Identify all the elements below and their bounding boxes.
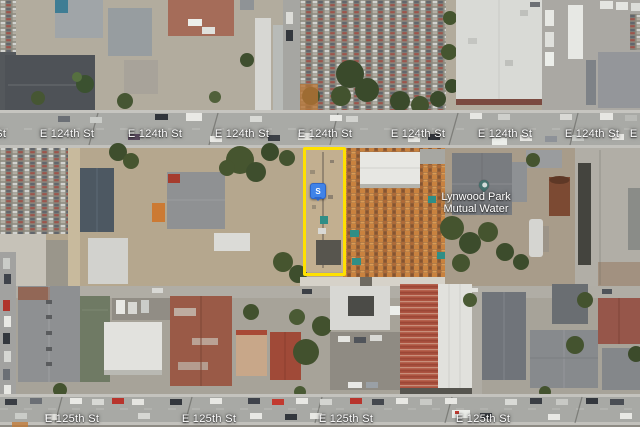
poi-pin-icon[interactable]: [477, 178, 491, 192]
listing-marker[interactable]: S: [310, 183, 326, 199]
street-label: E 124th St: [298, 128, 352, 140]
street-label: E 125th St: [456, 413, 510, 425]
street-label: E 124th St: [565, 128, 619, 140]
listing-marker-pointer: [314, 197, 322, 205]
street-label: E 124th St: [630, 128, 640, 140]
street-label: E 124th St: [478, 128, 532, 140]
street-label: E 124th St: [0, 128, 6, 140]
street-label: E 125th St: [45, 413, 99, 425]
street-label: E 125th St: [182, 413, 236, 425]
poi-pin-dot: [480, 181, 487, 188]
street-label: E 124th St: [40, 128, 94, 140]
street-label: E 124th St: [391, 128, 445, 140]
map-overlay: E 124th StE 124th StE 124th StE 124th St…: [0, 0, 640, 427]
parcel-highlight-rectangle: [303, 147, 346, 276]
street-label: E 124th St: [215, 128, 269, 140]
poi-label-line: Mutual Water: [441, 204, 510, 216]
street-label: E 124th St: [128, 128, 182, 140]
listing-marker-glyph: S: [315, 187, 320, 196]
satellite-map[interactable]: E 124th StE 124th StE 124th StE 124th St…: [0, 0, 640, 427]
street-label: E 125th St: [319, 413, 373, 425]
poi-label-line: Lynwood Park: [441, 192, 510, 204]
poi-label-lynwood-park-mutual-water[interactable]: Lynwood ParkMutual Water: [441, 192, 510, 215]
